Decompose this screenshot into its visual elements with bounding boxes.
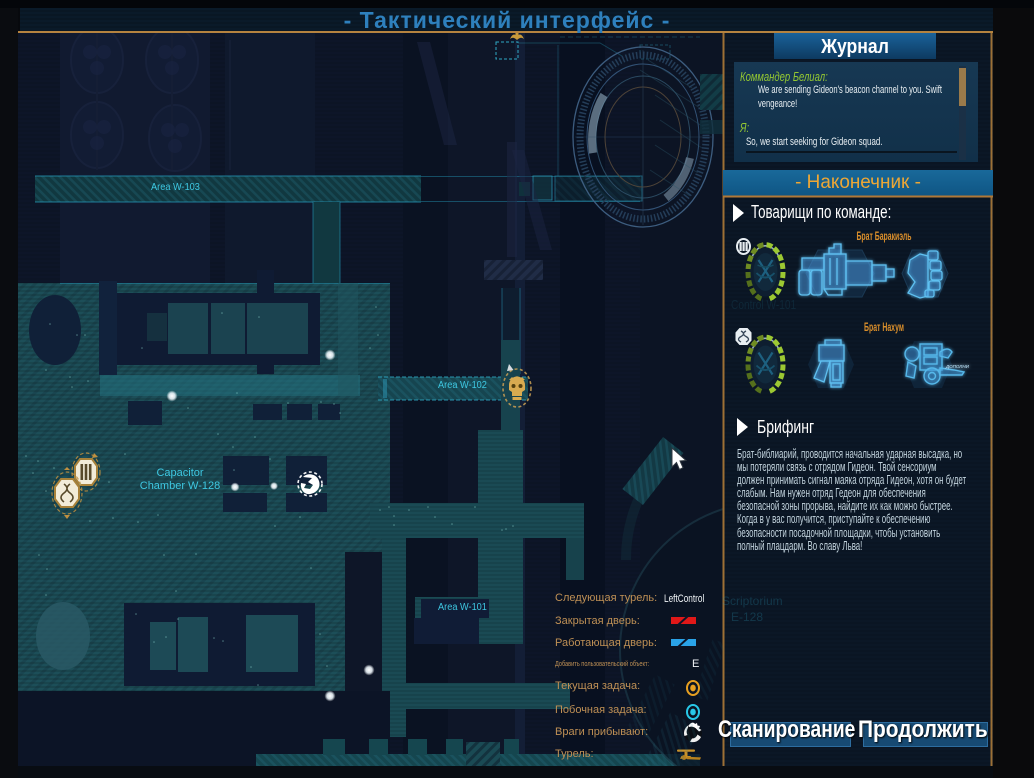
svg-text:ДОПОЛНИ: ДОПОЛНИ [945, 364, 970, 369]
